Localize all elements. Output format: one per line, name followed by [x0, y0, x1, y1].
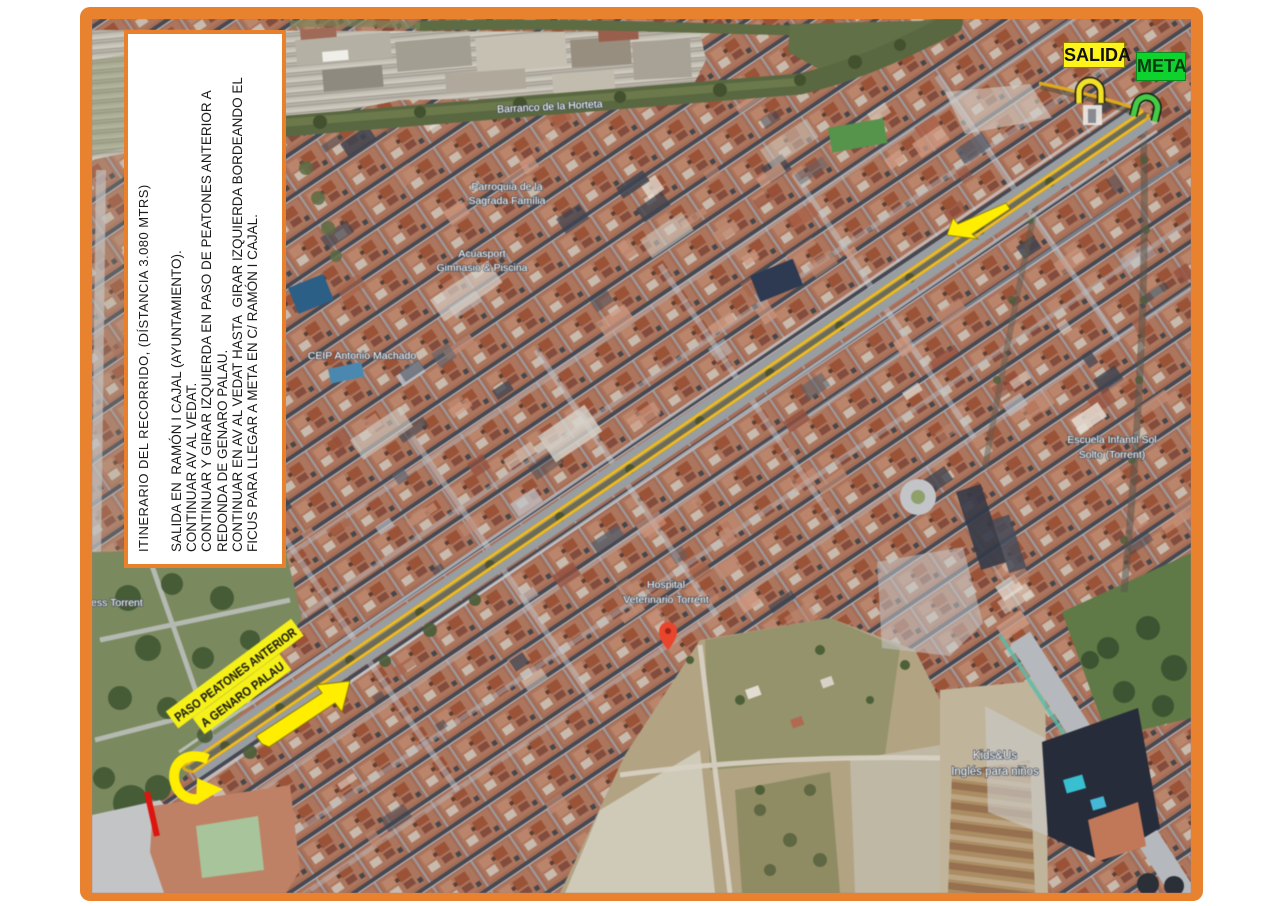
svg-text:Hospital: Hospital: [647, 579, 685, 591]
svg-text:Acuasport: Acuasport: [458, 248, 505, 260]
svg-text:Inglés para niños: Inglés para niños: [951, 766, 1039, 778]
svg-text:CEIP Antonio Machado: CEIP Antonio Machado: [308, 350, 417, 362]
svg-text:ness Torrent: ness Torrent: [92, 597, 143, 609]
svg-text:Gimnasio & Piscina: Gimnasio & Piscina: [436, 262, 527, 274]
svg-text:Escuela Infantil Sol: Escuela Infantil Sol: [1067, 434, 1156, 446]
svg-text:Parroquia de la: Parroquia de la: [471, 181, 542, 193]
svg-text:Sagrada Família: Sagrada Família: [468, 195, 545, 207]
svg-text:Solto (Torrent): Solto (Torrent): [1079, 449, 1146, 461]
svg-text:Kids&Us: Kids&Us: [973, 750, 1017, 762]
svg-text:Veterinario Torrent: Veterinario Torrent: [623, 594, 709, 606]
